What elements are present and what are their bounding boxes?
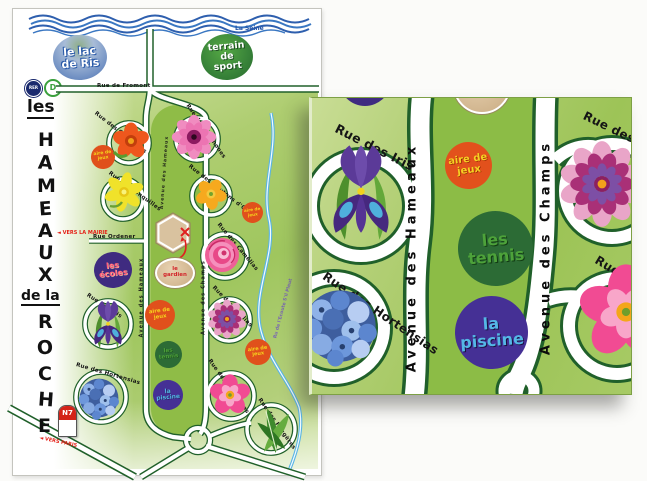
anemone-flower-icon xyxy=(172,115,216,159)
inset-iris-flower-icon xyxy=(315,146,407,246)
title-letter: H xyxy=(37,390,54,410)
inset-dahlia-flower-icon xyxy=(558,140,632,228)
title-dela: de la xyxy=(21,289,60,306)
iris-flower-icon xyxy=(85,302,131,348)
jonquille-flower-icon xyxy=(104,172,144,212)
title-letter: A xyxy=(37,154,53,174)
inset-street-label-avenue-champs: Avenue des Champs xyxy=(539,118,554,378)
guard-badge: legardien xyxy=(155,258,195,288)
capucine-flower-icon xyxy=(111,121,151,161)
map-page: La Seine le lac de Ris terrain de sport … xyxy=(12,8,322,476)
camelia-flower-icon xyxy=(202,235,242,275)
inset-eglantine-flower-icon xyxy=(580,266,632,358)
title-letter: A xyxy=(38,222,53,241)
title-les: les xyxy=(27,99,54,119)
inset-hortensia-flower-icon xyxy=(309,280,386,372)
title-letter: U xyxy=(38,244,54,264)
title-letter: C xyxy=(38,365,52,384)
title-letter: X xyxy=(38,266,53,285)
map-illustration: La Seine le lac de Ris terrain de sport … xyxy=(0,0,647,481)
title-letter: E xyxy=(38,417,51,436)
direction-mairie: ◄ VERS LA MAIRIE xyxy=(57,230,108,236)
hortensia-flower-icon xyxy=(74,373,124,423)
eglantine-flower-icon xyxy=(210,375,250,415)
fougere-fern-icon xyxy=(249,407,295,453)
inset-zoom-panel: écoles xyxy=(309,97,632,395)
title-letter: O xyxy=(36,338,53,358)
street-label-fromont: Rue de Fromont xyxy=(97,83,151,89)
title-letter: H xyxy=(38,131,54,150)
title-letter: M xyxy=(37,177,56,196)
title-letter: E xyxy=(38,200,52,220)
bouton-dor-flower-icon xyxy=(193,176,229,212)
street-label-avenue-hameaux: Avenue des Hameaux xyxy=(140,238,145,358)
title-letter: R xyxy=(38,313,53,332)
dahlia-flower-icon xyxy=(207,299,247,339)
